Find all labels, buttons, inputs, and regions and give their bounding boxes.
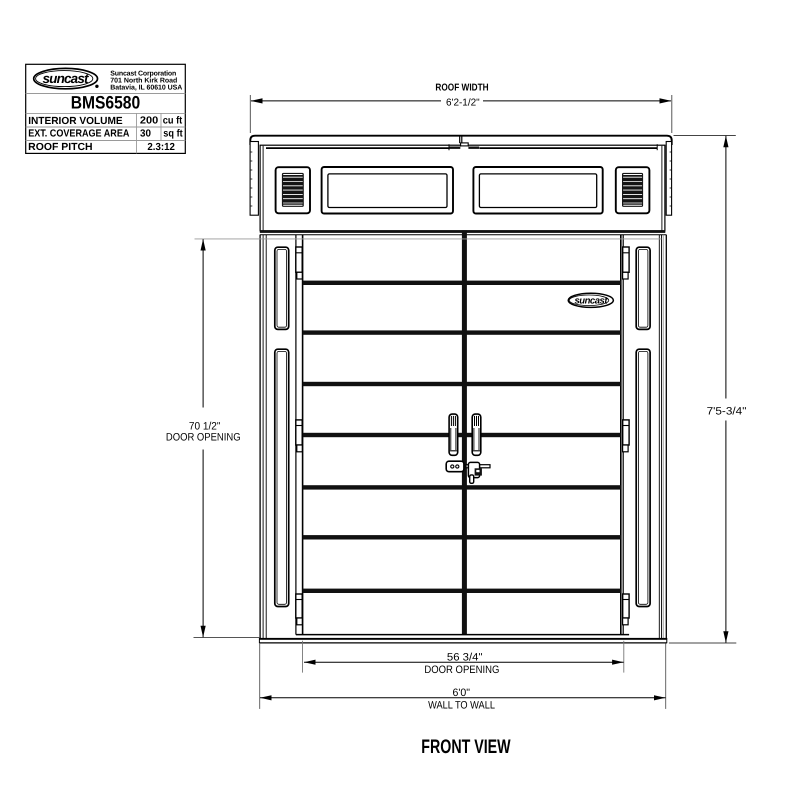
svg-text:suncast: suncast (43, 71, 90, 86)
svg-text:701 North Kirk Road: 701 North Kirk Road (110, 77, 177, 85)
svg-text:DOOR OPENING: DOOR OPENING (166, 432, 241, 444)
svg-text:Suncast Corporation: Suncast Corporation (110, 70, 176, 78)
svg-text:200: 200 (140, 116, 159, 127)
svg-text:FRONT VIEW: FRONT VIEW (421, 736, 511, 758)
svg-text:BMS6580: BMS6580 (71, 93, 141, 113)
svg-text:sq ft: sq ft (163, 129, 183, 140)
svg-text:6'0": 6'0" (453, 687, 471, 699)
svg-text:7'5-3/4": 7'5-3/4" (707, 405, 747, 417)
svg-text:DOOR OPENING: DOOR OPENING (424, 664, 499, 676)
svg-text:INTERIOR VOLUME: INTERIOR VOLUME (28, 116, 123, 127)
svg-text:ROOF WIDTH: ROOF WIDTH (435, 82, 488, 93)
svg-text:2.3:12: 2.3:12 (147, 142, 175, 153)
svg-text:Batavia, IL 60610 USA: Batavia, IL 60610 USA (110, 84, 182, 92)
svg-text:cu ft: cu ft (163, 116, 183, 127)
svg-text:EXT. COVERAGE AREA: EXT. COVERAGE AREA (28, 129, 130, 140)
svg-text:6'2-1/2": 6'2-1/2" (446, 97, 480, 108)
svg-text:ROOF PITCH: ROOF PITCH (28, 142, 92, 153)
svg-text:WALL TO WALL: WALL TO WALL (428, 700, 495, 712)
svg-text:30: 30 (140, 129, 151, 140)
svg-text:suncast: suncast (575, 295, 609, 306)
svg-text:56 3/4": 56 3/4" (447, 652, 483, 664)
svg-text:70 1/2": 70 1/2" (189, 420, 221, 432)
